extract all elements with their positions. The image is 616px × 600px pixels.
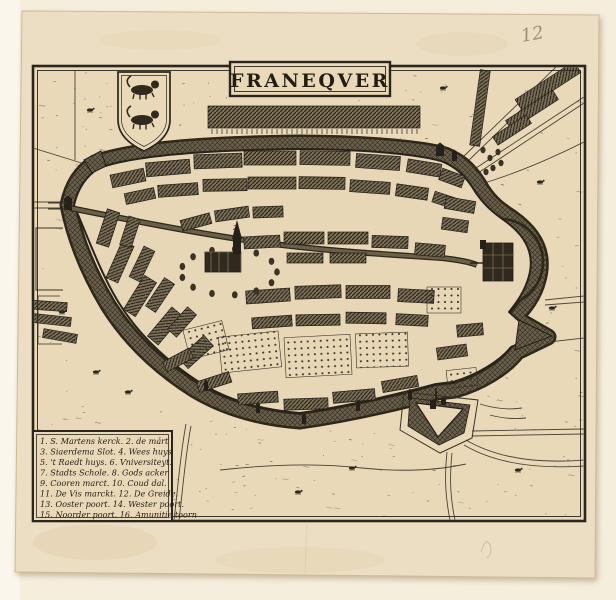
friesland-coat-of-arms xyxy=(118,72,170,151)
handwritten-number: 12 xyxy=(519,22,545,47)
legend-line-8: 15. Noorder poort. 16. Amunitie toorn xyxy=(40,510,197,520)
map-marker-2: 2 xyxy=(232,224,237,232)
map-marker-5: 5 xyxy=(287,314,291,322)
map-title: FRANEQVER xyxy=(230,70,390,92)
legend-box: 1. S. Martens kerck. 2. de márt 3. Siaer… xyxy=(33,431,197,521)
legend-line-3: 5. 't Raedt huys. 6. Vniversiteyt. xyxy=(40,457,172,467)
legend-line-5: 9. Cooren marct. 10. Coud dal. xyxy=(40,478,167,488)
title-cartouche: FRANEQVER xyxy=(230,62,390,96)
legend-line-4: 7. Stadts Schole. 8. Gods acker xyxy=(40,468,169,478)
legend-line-1: 1. S. Martens kerck. 2. de márt xyxy=(40,436,169,446)
legend-line-6: 11. De Vis marckt. 12. De Greide. xyxy=(40,489,178,499)
church-tower xyxy=(233,238,241,254)
antique-map-scan: 12 xyxy=(0,0,616,600)
legend-line-7: 13. Ooster poort. 14. Wester poort. xyxy=(40,499,184,509)
map-marker-3: 3 xyxy=(486,247,490,255)
legend-line-2: 3. Siaerdema Slot. 4. Wees huys xyxy=(40,447,172,457)
